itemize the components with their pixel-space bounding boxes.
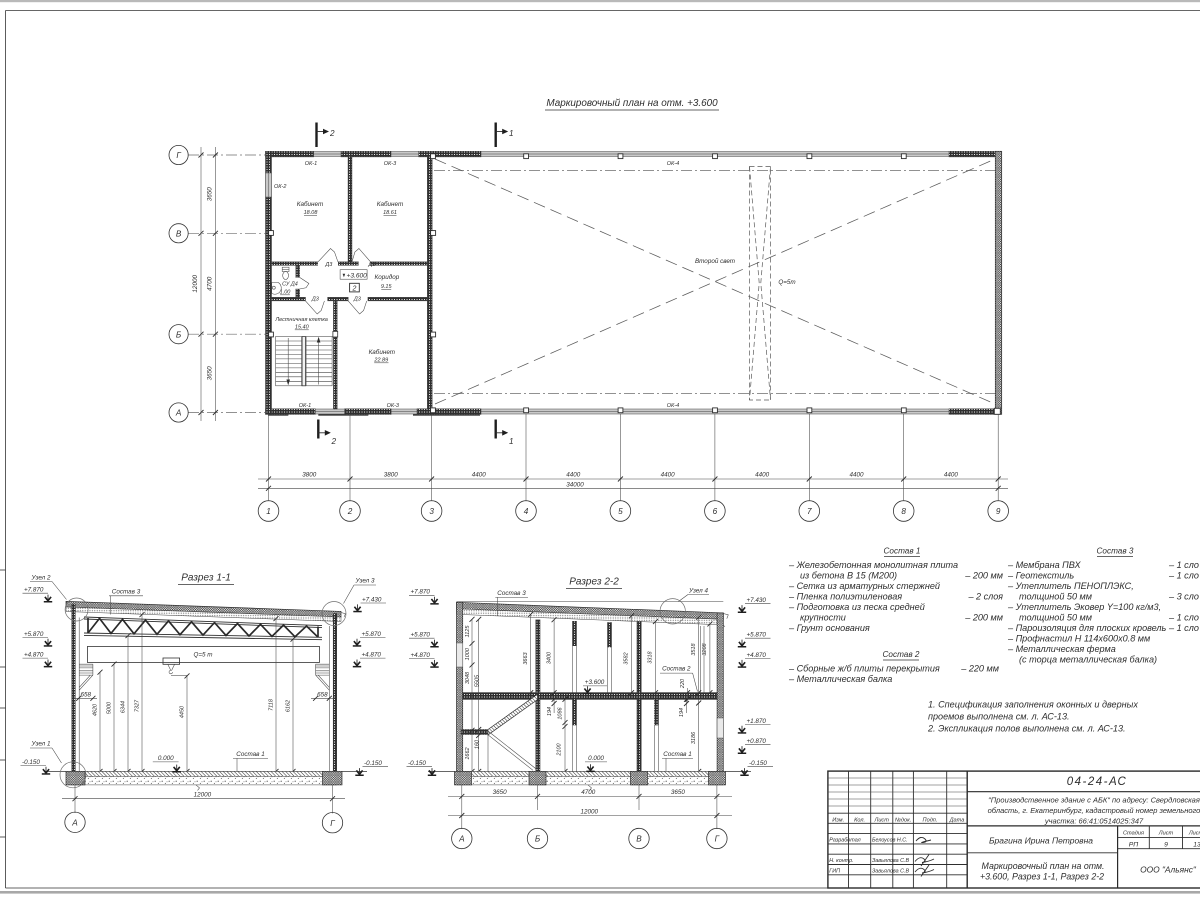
svg-text:4400: 4400 bbox=[566, 472, 581, 479]
svg-text:(с торца металлическая балка): (с торца металлическая балка) bbox=[1019, 655, 1157, 665]
svg-text:толщиной 50 мм: толщиной 50 мм bbox=[1019, 592, 1093, 602]
svg-text:из бетона В 15 (М200): из бетона В 15 (М200) bbox=[800, 571, 897, 581]
svg-text:0.000: 0.000 bbox=[588, 755, 604, 762]
svg-text:6344: 6344 bbox=[121, 701, 127, 713]
svg-text:В: В bbox=[176, 230, 182, 239]
svg-text:Второй свет: Второй свет bbox=[695, 257, 735, 265]
svg-text:Узел 1: Узел 1 bbox=[31, 741, 51, 748]
svg-text:Узел 3: Узел 3 bbox=[355, 578, 375, 585]
svg-text:проемов выполнена см. л. АС-13: проемов выполнена см. л. АС-13. bbox=[928, 712, 1070, 722]
svg-text:Завьялова С.В: Завьялова С.В bbox=[872, 858, 909, 864]
svg-text:Q=5 т: Q=5 т bbox=[193, 652, 212, 659]
svg-text:4400: 4400 bbox=[661, 472, 676, 479]
svg-text:ОК-3: ОК-3 bbox=[384, 161, 397, 167]
svg-text:658: 658 bbox=[317, 692, 328, 699]
svg-text:Кабинет: Кабинет bbox=[369, 348, 395, 356]
svg-text:2: 2 bbox=[352, 286, 357, 293]
svg-text:– Металлическая балка: – Металлическая балка bbox=[788, 674, 892, 684]
svg-text:9: 9 bbox=[996, 507, 1001, 516]
svg-text:ГИП: ГИП bbox=[829, 869, 840, 875]
svg-text:194: 194 bbox=[679, 708, 685, 717]
svg-text:Состав 2: Состав 2 bbox=[883, 650, 920, 659]
svg-text:Состав 3: Состав 3 bbox=[112, 588, 141, 595]
svg-text:2: 2 bbox=[347, 507, 353, 516]
svg-text:3582: 3582 bbox=[624, 652, 630, 664]
svg-text:Д3: Д3 bbox=[367, 262, 376, 268]
svg-text:3208: 3208 bbox=[702, 642, 708, 655]
svg-text:2. Экспликация полов выполнена: 2. Экспликация полов выполнена см. л. АС… bbox=[927, 724, 1126, 734]
svg-text:1000: 1000 bbox=[465, 647, 471, 660]
svg-text:3650: 3650 bbox=[493, 789, 508, 796]
svg-text:– 1 сло: – 1 сло bbox=[1168, 613, 1199, 623]
svg-text:8: 8 bbox=[901, 507, 906, 516]
svg-text:7118: 7118 bbox=[269, 698, 275, 711]
svg-text:+0.870: +0.870 bbox=[747, 738, 767, 745]
svg-text:толщиной 50 мм: толщиной 50 мм bbox=[1019, 613, 1093, 623]
svg-text:+4.870: +4.870 bbox=[747, 652, 767, 659]
svg-text:+7.430: +7.430 bbox=[362, 596, 382, 603]
svg-text:2: 2 bbox=[331, 437, 337, 446]
svg-text:3518: 3518 bbox=[691, 642, 697, 655]
svg-text:– Пароизоляция для плоских кро: – Пароизоляция для плоских кровель bbox=[1007, 623, 1167, 633]
svg-text:12000: 12000 bbox=[194, 792, 212, 799]
svg-text:Маркировочный план на отм. +3.: Маркировочный план на отм. +3.600 bbox=[546, 98, 718, 109]
svg-text:3318: 3318 bbox=[648, 650, 654, 663]
svg-text:1: 1 bbox=[266, 507, 271, 516]
svg-text:– Сборные ж/б плиты перекрытия: – Сборные ж/б плиты перекрытия bbox=[788, 664, 940, 674]
svg-text:ОК-3: ОК-3 bbox=[387, 403, 400, 409]
svg-text:Разработал: Разработал bbox=[829, 838, 860, 844]
svg-text:Г: Г bbox=[176, 151, 181, 160]
svg-text:3186: 3186 bbox=[691, 731, 697, 744]
svg-text:+7.430: +7.430 bbox=[747, 597, 767, 604]
svg-text:А: А bbox=[71, 819, 78, 828]
svg-text:7: 7 bbox=[807, 507, 812, 516]
svg-text:Листов: Листов bbox=[1188, 831, 1200, 837]
svg-text:Кабинет: Кабинет bbox=[297, 200, 323, 208]
svg-text:Состав 1: Состав 1 bbox=[236, 751, 264, 758]
svg-text:5000: 5000 bbox=[107, 701, 113, 714]
svg-text:Разрез 2-2: Разрез 2-2 bbox=[569, 577, 619, 588]
svg-text:+4.870: +4.870 bbox=[24, 652, 44, 659]
svg-text:Лестничная клетка: Лестничная клетка bbox=[274, 317, 328, 323]
svg-text:ОК-4: ОК-4 bbox=[667, 403, 679, 409]
svg-text:4400: 4400 bbox=[472, 472, 487, 479]
svg-text:В: В bbox=[636, 835, 642, 844]
svg-text:2: 2 bbox=[329, 129, 335, 138]
svg-text:ОК-2: ОК-2 bbox=[274, 184, 286, 190]
svg-text:А: А bbox=[458, 835, 465, 844]
svg-text:Разрез 1-1: Разрез 1-1 bbox=[181, 573, 231, 584]
svg-text:Стадия: Стадия bbox=[1123, 831, 1144, 837]
svg-text:Маркировочный план на отм.: Маркировочный план на отм. bbox=[982, 861, 1105, 871]
svg-text:– Геотекстиль: – Геотекстиль bbox=[1007, 571, 1074, 581]
svg-text:ОК-4: ОК-4 bbox=[667, 161, 679, 167]
svg-text:ООО "Альянс": ООО "Альянс" bbox=[1140, 865, 1197, 875]
svg-text:+3.600: +3.600 bbox=[585, 679, 605, 686]
svg-text:Г: Г bbox=[715, 835, 720, 844]
svg-text:-0.150: -0.150 bbox=[749, 760, 767, 767]
svg-text:4620: 4620 bbox=[93, 703, 99, 716]
svg-text:– 220 мм: – 220 мм bbox=[960, 664, 1000, 674]
svg-text:4: 4 bbox=[524, 507, 529, 516]
svg-text:крупности: крупности bbox=[800, 613, 846, 623]
svg-text:Узел 4: Узел 4 bbox=[688, 588, 708, 595]
svg-text:Б: Б bbox=[176, 330, 182, 339]
svg-text:160: 160 bbox=[474, 739, 480, 749]
svg-text:ОК-1: ОК-1 bbox=[299, 403, 311, 409]
svg-text:Завьялова С.В: Завьялова С.В bbox=[872, 869, 909, 875]
svg-text:34000: 34000 bbox=[566, 481, 584, 488]
svg-text:4400: 4400 bbox=[944, 472, 959, 479]
svg-text:РП: РП bbox=[1129, 841, 1139, 848]
svg-text:-0.150: -0.150 bbox=[364, 760, 382, 767]
svg-text:"Производственное здание с АБК: "Производственное здание с АБК" по адрес… bbox=[988, 796, 1200, 805]
svg-text:+5.870: +5.870 bbox=[362, 631, 382, 638]
svg-text:12000: 12000 bbox=[580, 809, 598, 816]
svg-text:12000: 12000 bbox=[192, 275, 199, 293]
svg-text:1. Спецификация заполнения око: 1. Спецификация заполнения оконных и две… bbox=[928, 700, 1138, 710]
svg-text:Подп.: Подп. bbox=[923, 817, 938, 823]
svg-text:13: 13 bbox=[1193, 841, 1200, 848]
svg-text:4400: 4400 bbox=[755, 472, 770, 479]
svg-text:Д3: Д3 bbox=[324, 262, 333, 268]
svg-text:04-24-АС: 04-24-АС bbox=[1067, 776, 1128, 788]
svg-text:– 1 сло: – 1 сло bbox=[1168, 623, 1199, 633]
svg-text:Состав 3: Состав 3 bbox=[1097, 547, 1134, 556]
svg-text:194: 194 bbox=[547, 707, 553, 716]
svg-text:– Утеплитель Эковер Y=100 кг/м: – Утеплитель Эковер Y=100 кг/м3, bbox=[1007, 602, 1161, 612]
svg-text:4400: 4400 bbox=[849, 472, 864, 479]
svg-text:2100: 2100 bbox=[557, 742, 563, 756]
svg-text:+3.600, Разрез 1-1, Разрез 2-2: +3.600, Разрез 1-1, Разрез 2-2 bbox=[980, 872, 1104, 882]
svg-text:+4.870: +4.870 bbox=[411, 652, 431, 659]
svg-text:Состав 1: Состав 1 bbox=[884, 547, 921, 556]
svg-text:+5.870: +5.870 bbox=[24, 631, 44, 638]
svg-text:3800: 3800 bbox=[384, 472, 399, 479]
svg-text:– Сетка из арматурных стержней: – Сетка из арматурных стержней bbox=[788, 581, 940, 591]
svg-text:Коридор: Коридор bbox=[375, 273, 400, 281]
svg-text:220: 220 bbox=[680, 678, 686, 689]
svg-text:-0.150: -0.150 bbox=[22, 759, 40, 766]
svg-text:658: 658 bbox=[81, 692, 92, 699]
svg-text:– 1 сло: – 1 сло bbox=[1168, 560, 1199, 570]
svg-text:6162: 6162 bbox=[286, 700, 292, 712]
svg-text:Б: Б bbox=[535, 835, 541, 844]
svg-text:– Мембрана ПВХ: – Мембрана ПВХ bbox=[1007, 560, 1082, 570]
svg-text:Дата: Дата bbox=[949, 817, 965, 823]
svg-text:3650: 3650 bbox=[671, 789, 686, 796]
svg-text:– 200 мм: – 200 мм bbox=[964, 613, 1004, 623]
svg-text:Кол.: Кол. bbox=[854, 817, 865, 823]
svg-text:– 2 слоя: – 2 слоя bbox=[967, 592, 1003, 602]
svg-text:9: 9 bbox=[1164, 841, 1168, 848]
svg-text:ОК-1: ОК-1 bbox=[305, 161, 317, 167]
svg-text:– Утеплитель ПЕНОПЛЭКС,: – Утеплитель ПЕНОПЛЭКС, bbox=[1007, 581, 1134, 591]
svg-text:Кабинет: Кабинет bbox=[377, 200, 403, 208]
svg-text:+7.870: +7.870 bbox=[24, 587, 44, 594]
svg-text:Белоусов Н.С.: Белоусов Н.С. bbox=[872, 838, 908, 844]
svg-text:-0.150: -0.150 bbox=[408, 760, 426, 767]
svg-text:Д3: Д3 bbox=[353, 296, 362, 302]
svg-text:Изм.: Изм. bbox=[832, 817, 844, 823]
svg-text:18.08: 18.08 bbox=[304, 210, 319, 216]
svg-text:6: 6 bbox=[713, 507, 718, 516]
svg-text:– Профнастил Н 114х600х0.8 мм: – Профнастил Н 114х600х0.8 мм bbox=[1007, 634, 1151, 644]
svg-text:1662: 1662 bbox=[465, 747, 471, 759]
svg-text:– Металлическая ферма: – Металлическая ферма bbox=[1007, 644, 1116, 654]
svg-text:3800: 3800 bbox=[302, 472, 317, 479]
svg-text:+5.870: +5.870 bbox=[411, 632, 431, 639]
svg-text:5505: 5505 bbox=[474, 674, 480, 687]
svg-text:+1.870: +1.870 bbox=[747, 718, 767, 725]
svg-text:– 1 сло: – 1 сло bbox=[1168, 571, 1199, 581]
svg-text:– Железобетонная монолитная п: – Железобетонная монолитная плита bbox=[788, 560, 958, 570]
svg-text:3650: 3650 bbox=[207, 187, 214, 202]
svg-text:1125: 1125 bbox=[465, 625, 471, 638]
svg-text:3400: 3400 bbox=[546, 651, 552, 664]
svg-text:+3.600: +3.600 bbox=[347, 273, 368, 280]
svg-text:1086: 1086 bbox=[558, 706, 564, 719]
svg-text:Лист: Лист bbox=[1158, 831, 1174, 837]
svg-text:Брагина Ирина Петровна: Брагина Ирина Петровна bbox=[989, 836, 1093, 846]
svg-text:Состав 1: Состав 1 bbox=[663, 751, 691, 758]
svg-text:– Подготовка из песка средней: – Подготовка из песка средней bbox=[788, 602, 925, 612]
svg-text:– Грунт основания: – Грунт основания bbox=[788, 623, 870, 633]
svg-text:+5.870: +5.870 bbox=[747, 632, 767, 639]
svg-text:– 3 сло: – 3 сло bbox=[1168, 592, 1199, 602]
svg-text:+4.870: +4.870 bbox=[362, 652, 382, 659]
svg-text:Состав 3: Состав 3 bbox=[497, 590, 526, 597]
svg-text:18.61: 18.61 bbox=[383, 210, 397, 216]
svg-text:Н. контр.: Н. контр. bbox=[829, 858, 853, 864]
svg-text:1: 1 bbox=[509, 437, 514, 446]
svg-text:А: А bbox=[175, 409, 182, 418]
svg-text:3663: 3663 bbox=[523, 651, 529, 664]
svg-text:7327: 7327 bbox=[135, 699, 141, 712]
svg-text:3: 3 bbox=[429, 507, 434, 516]
svg-text:4700: 4700 bbox=[581, 789, 596, 796]
svg-text:СУ Д4: СУ Д4 bbox=[282, 282, 298, 288]
svg-text:– 200 мм: – 200 мм bbox=[964, 571, 1004, 581]
svg-text:5: 5 bbox=[618, 507, 623, 516]
svg-text:3650: 3650 bbox=[207, 366, 214, 381]
svg-text:1: 1 bbox=[509, 129, 514, 138]
svg-text:область, г. Екатеринбург, када: область, г. Екатеринбург, кадастровый но… bbox=[988, 806, 1200, 815]
svg-text:Лист: Лист bbox=[873, 817, 889, 823]
svg-text:3048: 3048 bbox=[465, 671, 471, 684]
svg-text:№док.: №док. bbox=[895, 817, 911, 823]
svg-text:Q=5т: Q=5т bbox=[778, 279, 795, 286]
svg-text:участка: 66:41:0514025:347: участка: 66:41:0514025:347 bbox=[1044, 817, 1144, 826]
svg-text:Состав 2: Состав 2 bbox=[662, 666, 691, 673]
svg-text:0.000: 0.000 bbox=[158, 755, 174, 762]
svg-text:– Пленка полиэтиленовая: – Пленка полиэтиленовая bbox=[788, 592, 902, 602]
svg-text:+7.870: +7.870 bbox=[411, 589, 431, 596]
svg-text:4700: 4700 bbox=[207, 276, 214, 291]
svg-text:4450: 4450 bbox=[180, 705, 186, 718]
svg-text:Г: Г bbox=[330, 819, 335, 828]
svg-text:Узел 2: Узел 2 bbox=[31, 575, 51, 582]
svg-text:Д3: Д3 bbox=[311, 296, 320, 302]
